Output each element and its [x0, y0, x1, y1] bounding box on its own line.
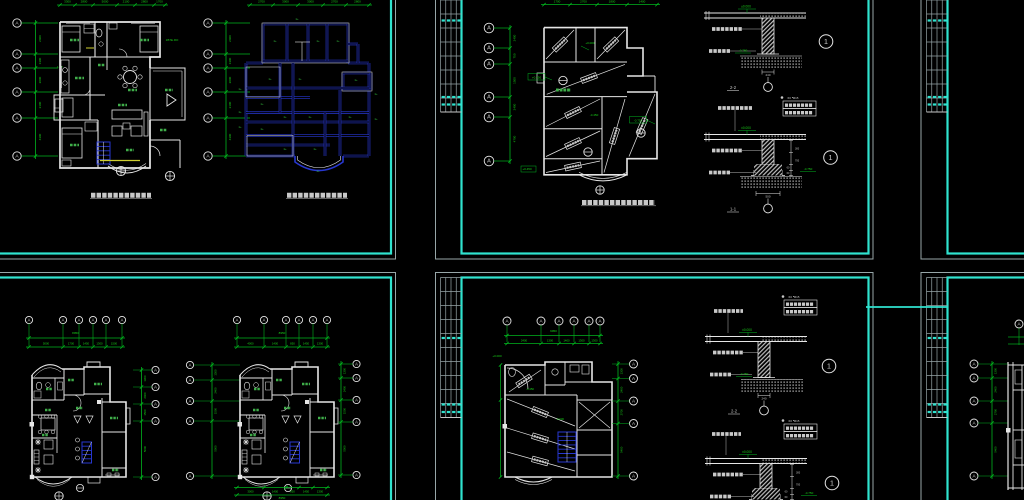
svg-text:2-2: 2-2 — [730, 85, 737, 90]
svg-text:A: A — [355, 473, 358, 478]
svg-text:3000: 3000 — [247, 490, 254, 494]
svg-text:1500: 1500 — [143, 409, 147, 416]
svg-text:300: 300 — [795, 148, 800, 151]
svg-text:A: A — [154, 402, 157, 407]
svg-text:1+: 1+ — [313, 147, 317, 151]
svg-text:1400: 1400 — [272, 342, 279, 346]
svg-text:1: 1 — [828, 153, 832, 162]
svg-text:+0.450: +0.450 — [532, 76, 542, 80]
svg-text:A: A — [487, 26, 491, 32]
svg-text:5000: 5000 — [343, 445, 347, 452]
svg-text:A: A — [189, 363, 192, 368]
svg-text:2400: 2400 — [620, 386, 624, 393]
svg-text:2400: 2400 — [521, 339, 528, 343]
svg-text:A: A — [78, 318, 81, 323]
svg-text:A: A — [487, 62, 491, 68]
svg-text:1+: 1+ — [316, 169, 320, 173]
svg-text:A: A — [154, 385, 157, 390]
svg-text:2400: 2400 — [343, 385, 347, 392]
svg-text:1+: 1+ — [374, 92, 378, 96]
svg-text:1300: 1300 — [96, 342, 103, 346]
svg-text:A: A — [487, 159, 491, 165]
svg-text:1300: 1300 — [214, 369, 218, 376]
svg-text:850: 850 — [290, 342, 295, 346]
svg-text:4700: 4700 — [513, 135, 517, 142]
svg-text:3300: 3300 — [64, 0, 71, 4]
svg-text:2700: 2700 — [331, 0, 338, 4]
svg-text:1400: 1400 — [639, 0, 646, 4]
svg-text:5000: 5000 — [214, 445, 218, 452]
svg-text:A: A — [355, 398, 358, 403]
svg-text:A: A — [487, 95, 491, 101]
svg-text:A: A — [189, 419, 192, 424]
svg-text:1400: 1400 — [563, 339, 570, 343]
svg-text:A: A — [154, 368, 157, 373]
svg-text:60 ℃15: 60 ℃15 — [789, 295, 800, 299]
svg-text:-0.750: -0.750 — [805, 491, 814, 495]
svg-text:A: A — [189, 399, 192, 404]
svg-text:A: A — [236, 318, 239, 323]
svg-text:3000: 3000 — [282, 0, 289, 4]
svg-text:±0.000: ±0.000 — [741, 126, 751, 130]
svg-text:750: 750 — [513, 53, 517, 58]
svg-text:A: A — [189, 474, 192, 479]
svg-text:2400: 2400 — [214, 387, 218, 394]
svg-text:1+: 1+ — [268, 77, 272, 81]
svg-text:1300: 1300 — [317, 490, 324, 494]
svg-text:+0.450: +0.450 — [522, 167, 532, 171]
svg-text:1300: 1300 — [620, 368, 624, 375]
svg-text:700: 700 — [796, 484, 801, 487]
svg-text:-0.780: -0.780 — [740, 372, 749, 376]
svg-text:-0.030: -0.030 — [556, 417, 564, 421]
svg-text:2700: 2700 — [258, 0, 265, 4]
svg-text:500: 500 — [765, 194, 770, 198]
svg-text:1500: 1500 — [513, 77, 517, 84]
svg-text:2400: 2400 — [228, 35, 232, 42]
svg-text:2700: 2700 — [994, 408, 998, 415]
svg-text:1+: 1+ — [273, 39, 277, 43]
svg-text:1+: 1+ — [283, 115, 287, 119]
svg-text:1: 1 — [824, 37, 828, 46]
svg-text:1300: 1300 — [578, 339, 585, 343]
svg-text:1+: 1+ — [238, 87, 242, 91]
svg-text:A: A — [487, 46, 491, 52]
svg-text:240: 240 — [765, 73, 770, 77]
svg-text:5400: 5400 — [994, 446, 998, 453]
svg-text:±0.000: ±0.000 — [742, 328, 752, 332]
svg-text:1500: 1500 — [214, 407, 218, 414]
svg-text:A: A — [154, 419, 157, 424]
svg-text:8950: 8950 — [279, 496, 286, 500]
svg-text:1300: 1300 — [38, 57, 42, 64]
svg-text:1700: 1700 — [68, 342, 75, 346]
svg-text:5000: 5000 — [143, 445, 147, 452]
svg-text:A: A — [312, 318, 315, 323]
svg-text:2000: 2000 — [228, 76, 232, 83]
svg-text:1450: 1450 — [83, 342, 90, 346]
svg-text:A: A — [285, 318, 288, 323]
svg-text:±0.000: ±0.000 — [742, 450, 752, 454]
svg-text:1+: 1+ — [295, 17, 299, 21]
svg-text:1300: 1300 — [591, 339, 598, 343]
svg-text:1+: 1+ — [374, 117, 378, 121]
svg-text:2700: 2700 — [580, 0, 587, 4]
svg-text:700: 700 — [795, 160, 800, 163]
svg-text:1+: 1+ — [316, 39, 320, 43]
svg-text:1: 1 — [830, 479, 834, 488]
svg-text:A: A — [105, 318, 108, 323]
svg-text:1300: 1300 — [317, 342, 324, 346]
svg-text:+0.000: +0.000 — [492, 354, 502, 358]
svg-text:1-1: 1-1 — [730, 207, 737, 212]
svg-text:1400: 1400 — [272, 490, 279, 494]
svg-text:A: A — [326, 318, 329, 323]
svg-text:240: 240 — [761, 396, 766, 400]
svg-text:-0.750: -0.750 — [634, 119, 643, 123]
svg-text:A: A — [487, 115, 491, 121]
svg-text:60 ℃15: 60 ℃15 — [789, 419, 800, 423]
svg-text:A: A — [189, 378, 192, 383]
svg-text:2400: 2400 — [513, 103, 517, 110]
svg-text:1+: 1+ — [283, 147, 287, 151]
svg-text:A: A — [92, 318, 95, 323]
svg-text:1450: 1450 — [303, 490, 310, 494]
svg-text:1+: 1+ — [260, 127, 264, 131]
svg-text:4300: 4300 — [38, 133, 42, 140]
svg-text:2800: 2800 — [81, 0, 88, 4]
svg-text:+0.000: +0.000 — [585, 41, 595, 45]
svg-text:1700: 1700 — [554, 0, 561, 4]
svg-text:2800: 2800 — [141, 0, 148, 4]
svg-text:1300: 1300 — [343, 367, 347, 374]
svg-text:4300: 4300 — [228, 133, 232, 140]
svg-text:2800: 2800 — [354, 0, 361, 4]
svg-text:2-2: 2-2 — [731, 409, 738, 414]
svg-text:5000: 5000 — [102, 0, 109, 4]
svg-text:2400: 2400 — [38, 35, 42, 42]
svg-text:8950: 8950 — [72, 331, 79, 335]
svg-text:1300: 1300 — [143, 375, 147, 382]
svg-text:2400: 2400 — [994, 386, 998, 393]
svg-text:3000: 3000 — [307, 0, 314, 4]
svg-text:1700: 1700 — [156, 0, 163, 4]
svg-text:-0.450: -0.450 — [526, 387, 534, 391]
svg-text:2400: 2400 — [143, 392, 147, 399]
svg-text:5400: 5400 — [620, 446, 624, 453]
svg-text:A: A — [28, 318, 31, 323]
svg-text:1+: 1+ — [238, 110, 242, 114]
svg-text:A: A — [154, 475, 157, 480]
svg-text:60 ℃15: 60 ℃15 — [788, 96, 799, 100]
svg-text:1300: 1300 — [994, 367, 998, 374]
svg-text:1B7E.RO: 1B7E.RO — [166, 38, 179, 42]
svg-text:2000: 2000 — [38, 76, 42, 83]
svg-text:5000: 5000 — [43, 342, 50, 346]
svg-text:A: A — [121, 318, 124, 323]
svg-text:-0.750: -0.750 — [804, 167, 813, 171]
svg-text:4000: 4000 — [247, 342, 254, 346]
svg-text:A: A — [298, 318, 301, 323]
svg-text:2100: 2100 — [123, 0, 130, 4]
svg-text:300: 300 — [796, 472, 801, 475]
svg-text:2700: 2700 — [620, 409, 624, 416]
svg-text:2100: 2100 — [38, 101, 42, 108]
svg-text:850: 850 — [290, 490, 295, 494]
svg-text:A: A — [263, 318, 266, 323]
svg-text:±0.000: ±0.000 — [741, 5, 751, 9]
svg-text:1+: 1+ — [354, 78, 358, 82]
svg-text:1450: 1450 — [303, 342, 310, 346]
svg-text:1+: 1+ — [308, 115, 312, 119]
svg-text:A: A — [355, 376, 358, 381]
svg-text:1+: 1+ — [298, 77, 302, 81]
svg-text:1+: 1+ — [238, 125, 242, 129]
svg-text:1+: 1+ — [260, 102, 264, 106]
svg-text:1300: 1300 — [547, 339, 554, 343]
svg-text:1+: 1+ — [336, 39, 340, 43]
svg-text:1500: 1500 — [111, 342, 118, 346]
svg-text:8950: 8950 — [279, 331, 286, 335]
svg-text:9950: 9950 — [550, 329, 557, 333]
svg-text:1800: 1800 — [609, 0, 616, 4]
svg-text:1500: 1500 — [343, 407, 347, 414]
svg-text:1300: 1300 — [228, 57, 232, 64]
svg-text:-0.450: -0.450 — [590, 113, 599, 117]
svg-text:-0.780: -0.780 — [739, 49, 748, 53]
svg-text:1+: 1+ — [348, 115, 352, 119]
svg-text:A: A — [62, 318, 65, 323]
svg-text:1: 1 — [827, 362, 831, 371]
svg-text:A: A — [355, 362, 358, 367]
svg-text:2100: 2100 — [228, 101, 232, 108]
svg-text:2400: 2400 — [513, 34, 517, 41]
svg-text:A: A — [355, 420, 358, 425]
